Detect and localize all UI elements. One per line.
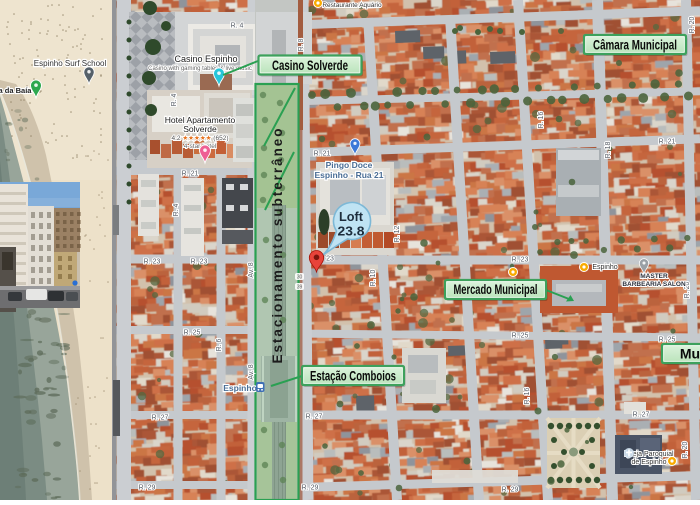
- svg-text:R. 8: R. 8: [298, 38, 305, 51]
- svg-text:Pingo Doce: Pingo Doce: [326, 160, 373, 170]
- svg-text:R. 6: R. 6: [216, 338, 223, 351]
- svg-text:30: 30: [297, 275, 303, 281]
- svg-text:BARBEARIA SALON: BARBEARIA SALON: [622, 281, 686, 288]
- svg-text:R. 21: R. 21: [182, 171, 199, 178]
- svg-text:R. 4: R. 4: [231, 23, 244, 30]
- svg-text:Estação Comboios: Estação Comboios: [310, 367, 396, 383]
- svg-text:de Espinho: de Espinho: [631, 459, 666, 466]
- svg-text:Mu: Mu: [680, 345, 700, 361]
- svg-text:R. 4: R. 4: [173, 203, 180, 216]
- svg-text:Espinho Surf School: Espinho Surf School: [34, 59, 107, 68]
- svg-text:R. 25: R. 25: [184, 330, 201, 337]
- svg-text:Restaurante Aquário: Restaurante Aquário: [322, 2, 382, 9]
- svg-text:R. 4: R. 4: [171, 93, 178, 106]
- svg-text:23: 23: [326, 256, 334, 263]
- svg-text:R. 21: R. 21: [314, 151, 331, 158]
- svg-text:a da Baía: a da Baía: [0, 86, 32, 95]
- svg-text:R. 27: R. 27: [306, 414, 323, 421]
- svg-text:R. 23: R. 23: [191, 259, 208, 266]
- svg-text:R. 20: R. 20: [689, 17, 696, 34]
- svg-text:R. 21: R. 21: [659, 139, 676, 146]
- svg-text:MASTER: MASTER: [640, 273, 668, 280]
- svg-text:R. 16: R. 16: [538, 112, 545, 129]
- svg-text:Loft: Loft: [339, 209, 364, 224]
- svg-text:Av. 8: Av. 8: [248, 364, 255, 379]
- svg-text:Espinho - Rua 21: Espinho - Rua 21: [315, 170, 384, 180]
- svg-text:R. 23: R. 23: [512, 257, 529, 264]
- svg-text:39: 39: [297, 285, 303, 291]
- svg-text:23.8: 23.8: [338, 224, 365, 239]
- svg-text:Casino Solverde: Casino Solverde: [272, 57, 348, 73]
- svg-text:Espinho: Espinho: [223, 383, 257, 393]
- svg-text:R. 25: R. 25: [512, 333, 529, 340]
- svg-text:Solverde: Solverde: [183, 124, 217, 134]
- svg-text:R. 20: R. 20: [682, 442, 689, 459]
- svg-text:R. 29: R. 29: [502, 487, 519, 494]
- svg-text:4.2 ★★★★★ (652): 4.2 ★★★★★ (652): [172, 134, 229, 142]
- svg-text:Mercado Municipal: Mercado Municipal: [454, 282, 538, 297]
- svg-text:Casino Espinho: Casino Espinho: [174, 54, 237, 64]
- svg-text:R. 18: R. 18: [605, 142, 612, 159]
- svg-text:Av. 8: Av. 8: [248, 262, 255, 277]
- svg-text:Espinho: Espinho: [592, 264, 617, 271]
- svg-text:R. 27: R. 27: [633, 412, 650, 419]
- svg-text:R. 29: R. 29: [302, 485, 319, 492]
- svg-text:R. 23: R. 23: [144, 259, 161, 266]
- svg-text:Câmara Municipal: Câmara Municipal: [593, 36, 677, 52]
- svg-text:R. 16: R. 16: [524, 388, 531, 405]
- svg-text:R. 27: R. 27: [152, 415, 169, 422]
- svg-text:R. 25: R. 25: [659, 337, 676, 344]
- svg-text:R. 29: R. 29: [139, 485, 156, 492]
- svg-text:R. 10: R. 10: [370, 270, 377, 287]
- svg-text:R. 12: R. 12: [394, 226, 401, 243]
